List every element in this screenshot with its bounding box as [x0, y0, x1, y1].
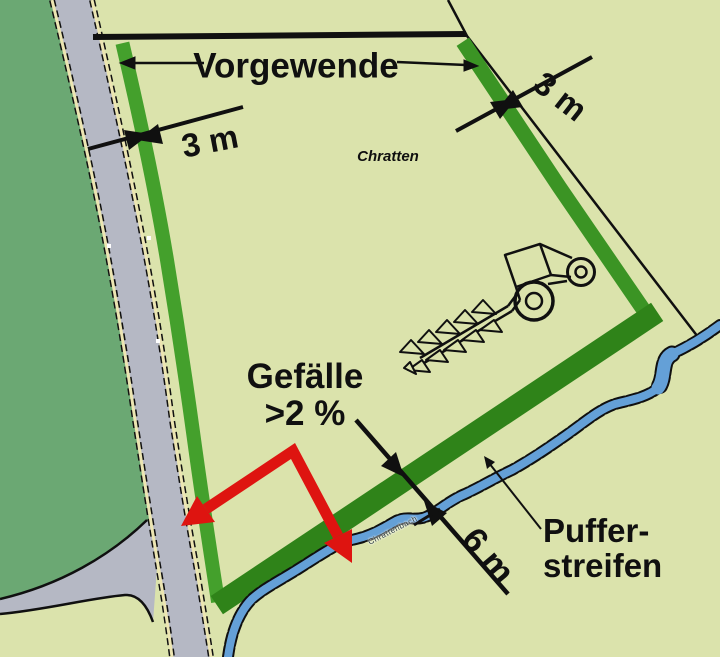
pufferstreifen-label: Puffer- streifen	[543, 514, 662, 584]
vorgewende-label: Vorgewende	[193, 47, 399, 84]
slope-label-line2: >2 %	[247, 395, 364, 432]
slope-label: Gefälle >2 %	[247, 358, 364, 432]
pufferstreifen-label-line2: streifen	[543, 549, 662, 584]
diagram-canvas: Vorgewende 3 m 3 m Chratten Gefälle >2 %…	[0, 0, 720, 657]
road-marker-dot	[107, 244, 111, 248]
road-marker-dot	[156, 339, 160, 343]
field-name-label: Chratten	[357, 149, 419, 165]
slope-label-line1: Gefälle	[247, 358, 364, 395]
road-marker-dot	[147, 236, 151, 240]
pufferstreifen-label-line1: Puffer-	[543, 514, 662, 549]
